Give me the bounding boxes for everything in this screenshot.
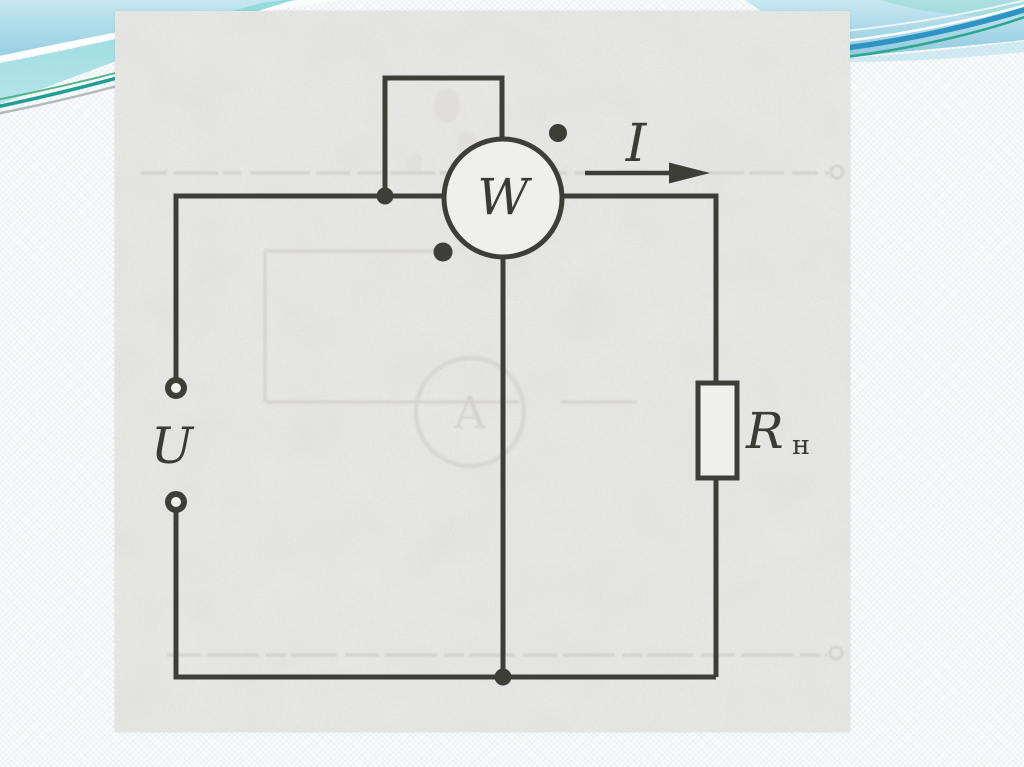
junction-dot-left: [377, 188, 394, 205]
current-label: I: [625, 114, 648, 174]
circuit-diagram: A R н W U: [115, 11, 850, 732]
ghost-smudge-3: [407, 153, 423, 173]
load-resistor-subscript: н: [792, 430, 810, 461]
paper-grain-mottle: [115, 11, 850, 732]
wattmeter-label: W: [477, 168, 532, 226]
polarity-dot-top: [549, 124, 567, 142]
scanned-circuit-figure: A R н W U: [115, 11, 850, 732]
ghost-smudge-1: [434, 89, 460, 123]
voltage-terminal-lower: [168, 494, 184, 510]
presentation-slide: A R н W U: [0, 0, 1024, 767]
ghost-ammeter-label: A: [453, 388, 487, 439]
voltage-label: U: [151, 417, 195, 475]
polarity-dot-bottom: [434, 243, 453, 262]
load-resistor: [698, 383, 737, 478]
load-resistor-label: R: [745, 402, 784, 460]
voltage-terminal-upper: [168, 380, 184, 396]
junction-dot-bottom: [495, 669, 512, 686]
